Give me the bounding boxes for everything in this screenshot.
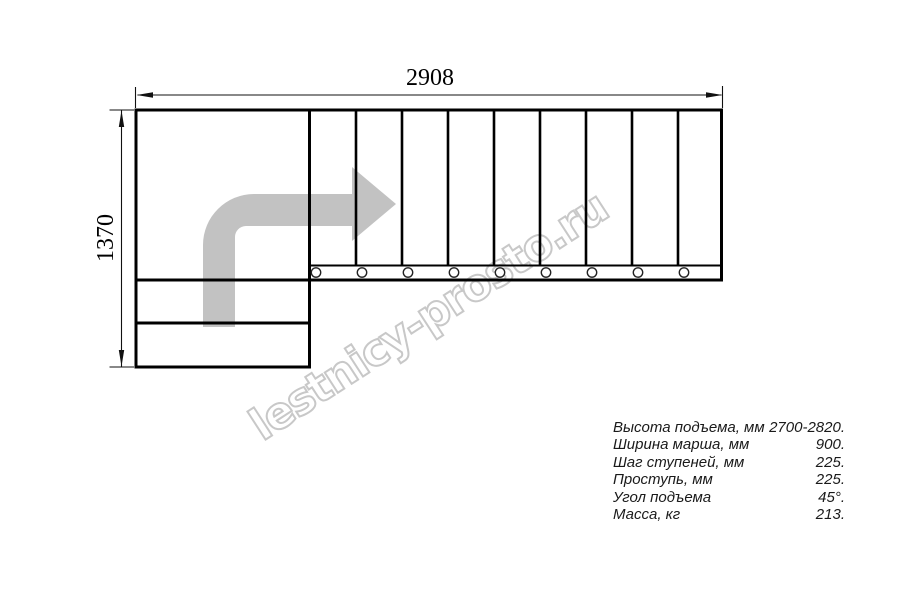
spec-label: Высота подъема, мм (613, 419, 765, 436)
spec-value: 225. (816, 454, 845, 471)
spec-row-angle: Угол подъема 45°. (613, 489, 845, 506)
spec-label: Шаг ступеней, мм (613, 454, 744, 471)
bolt-circles (311, 268, 688, 277)
spec-row-tread: Проступь, мм 225. (613, 471, 845, 488)
spec-label: Проступь, мм (613, 471, 713, 488)
spec-value: 213. (816, 506, 845, 523)
spec-row-height: Высота подъема, мм 2700-2820. (613, 419, 845, 436)
spec-label: Угол подъема (613, 489, 711, 506)
spec-row-march-width: Ширина марша, мм 900. (613, 436, 845, 453)
tread-lines (356, 110, 678, 266)
spec-value: 45°. (818, 489, 845, 506)
spec-row-step-pitch: Шаг ступеней, мм 225. (613, 454, 845, 471)
spec-label: Масса, кг (613, 506, 680, 523)
spec-label: Ширина марша, мм (613, 436, 749, 453)
dimension-width-label: 2908 (375, 66, 485, 90)
spec-table: Высота подъема, мм 2700-2820. Ширина мар… (613, 419, 845, 523)
spec-value: 900. (816, 436, 845, 453)
spec-row-mass: Масса, кг 213. (613, 506, 845, 523)
spec-value: 2700-2820. (769, 419, 845, 436)
stair-drawing-page: lestnicy-prosto.ru (0, 0, 900, 600)
spec-value: 225. (816, 471, 845, 488)
dimension-height-label: 1370 (94, 183, 118, 293)
direction-arrow-icon (203, 167, 396, 327)
